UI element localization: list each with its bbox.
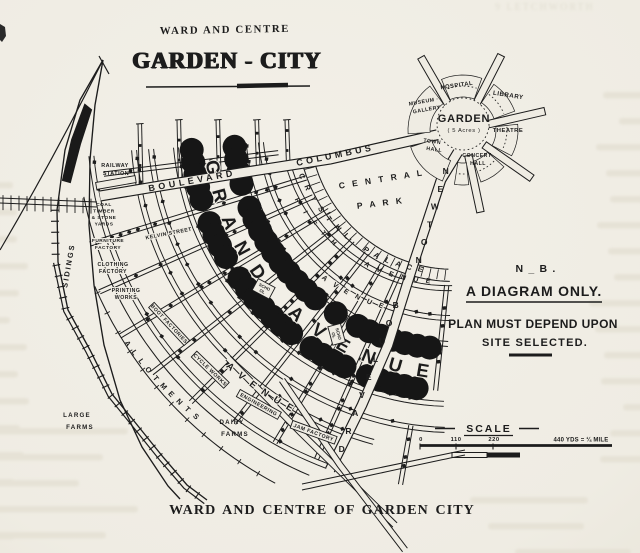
- svg-text:GARDEN: GARDEN: [438, 113, 490, 125]
- svg-text:THEATRE: THEATRE: [493, 128, 523, 134]
- svg-text:FURNITURE: FURNITURE: [92, 238, 125, 244]
- svg-text:A: A: [352, 408, 359, 418]
- svg-text:FARMS: FARMS: [221, 431, 249, 438]
- svg-text:SITE SELECTED.: SITE SELECTED.: [482, 337, 588, 349]
- svg-text:E: E: [438, 184, 444, 194]
- svg-text:N: N: [416, 255, 423, 265]
- svg-text:& STONE: & STONE: [92, 215, 117, 221]
- svg-text:FACTORY: FACTORY: [95, 245, 121, 251]
- svg-text:B: B: [393, 300, 400, 310]
- svg-text:DAIRY: DAIRY: [219, 419, 244, 426]
- svg-text:( 5 Acres ): ( 5 Acres ): [447, 128, 480, 134]
- svg-text:V: V: [359, 390, 365, 400]
- svg-text:CONCERT: CONCERT: [462, 153, 491, 159]
- svg-text:9 LETCHWORTH: 9 LETCHWORTH: [495, 2, 595, 13]
- svg-text:HALL: HALL: [470, 161, 486, 167]
- svg-text:CLOTHING: CLOTHING: [97, 262, 128, 268]
- svg-text:E: E: [366, 372, 372, 382]
- svg-text:D: D: [339, 444, 346, 454]
- svg-text:COAL: COAL: [96, 202, 112, 208]
- svg-text:O: O: [386, 318, 393, 328]
- svg-text:110: 110: [451, 437, 462, 443]
- svg-text:WARD AND CENTRE OF GARDEN CITY: WARD AND CENTRE OF GARDEN CITY: [169, 503, 475, 518]
- svg-text:PRINTING: PRINTING: [112, 288, 141, 294]
- svg-text:W: W: [431, 202, 440, 212]
- svg-text:220: 220: [488, 437, 499, 443]
- svg-text:T: T: [427, 219, 433, 229]
- svg-text:WARD AND CENTRE: WARD AND CENTRE: [160, 23, 290, 37]
- svg-text:PLAN MUST DEPEND UPON: PLAN MUST DEPEND UPON: [448, 317, 618, 331]
- svg-text:0: 0: [419, 437, 423, 443]
- svg-text:STATION: STATION: [103, 171, 129, 177]
- svg-text:440 YDS = ¼ MILE: 440 YDS = ¼ MILE: [554, 437, 609, 444]
- svg-text:L: L: [373, 354, 379, 364]
- svg-text:GARDEN - CITY: GARDEN - CITY: [132, 48, 321, 73]
- svg-text:FARMS: FARMS: [66, 424, 94, 431]
- svg-text:SCALE: SCALE: [466, 423, 512, 435]
- svg-text:FACTORY: FACTORY: [99, 269, 127, 275]
- svg-text:N _ B .: N _ B .: [515, 263, 556, 275]
- svg-text:LARGE: LARGE: [63, 412, 91, 419]
- svg-text:YARDS: YARDS: [95, 222, 114, 228]
- svg-text:U: U: [379, 336, 386, 346]
- svg-text:N: N: [443, 166, 450, 176]
- svg-text:O: O: [421, 237, 428, 247]
- svg-text:TIMBER: TIMBER: [93, 209, 114, 215]
- svg-text:R: R: [345, 426, 352, 436]
- svg-text:WORKS: WORKS: [115, 295, 137, 301]
- svg-text:A DIAGRAM ONLY.: A DIAGRAM ONLY.: [466, 283, 602, 299]
- svg-text:RAILWAY: RAILWAY: [101, 163, 129, 169]
